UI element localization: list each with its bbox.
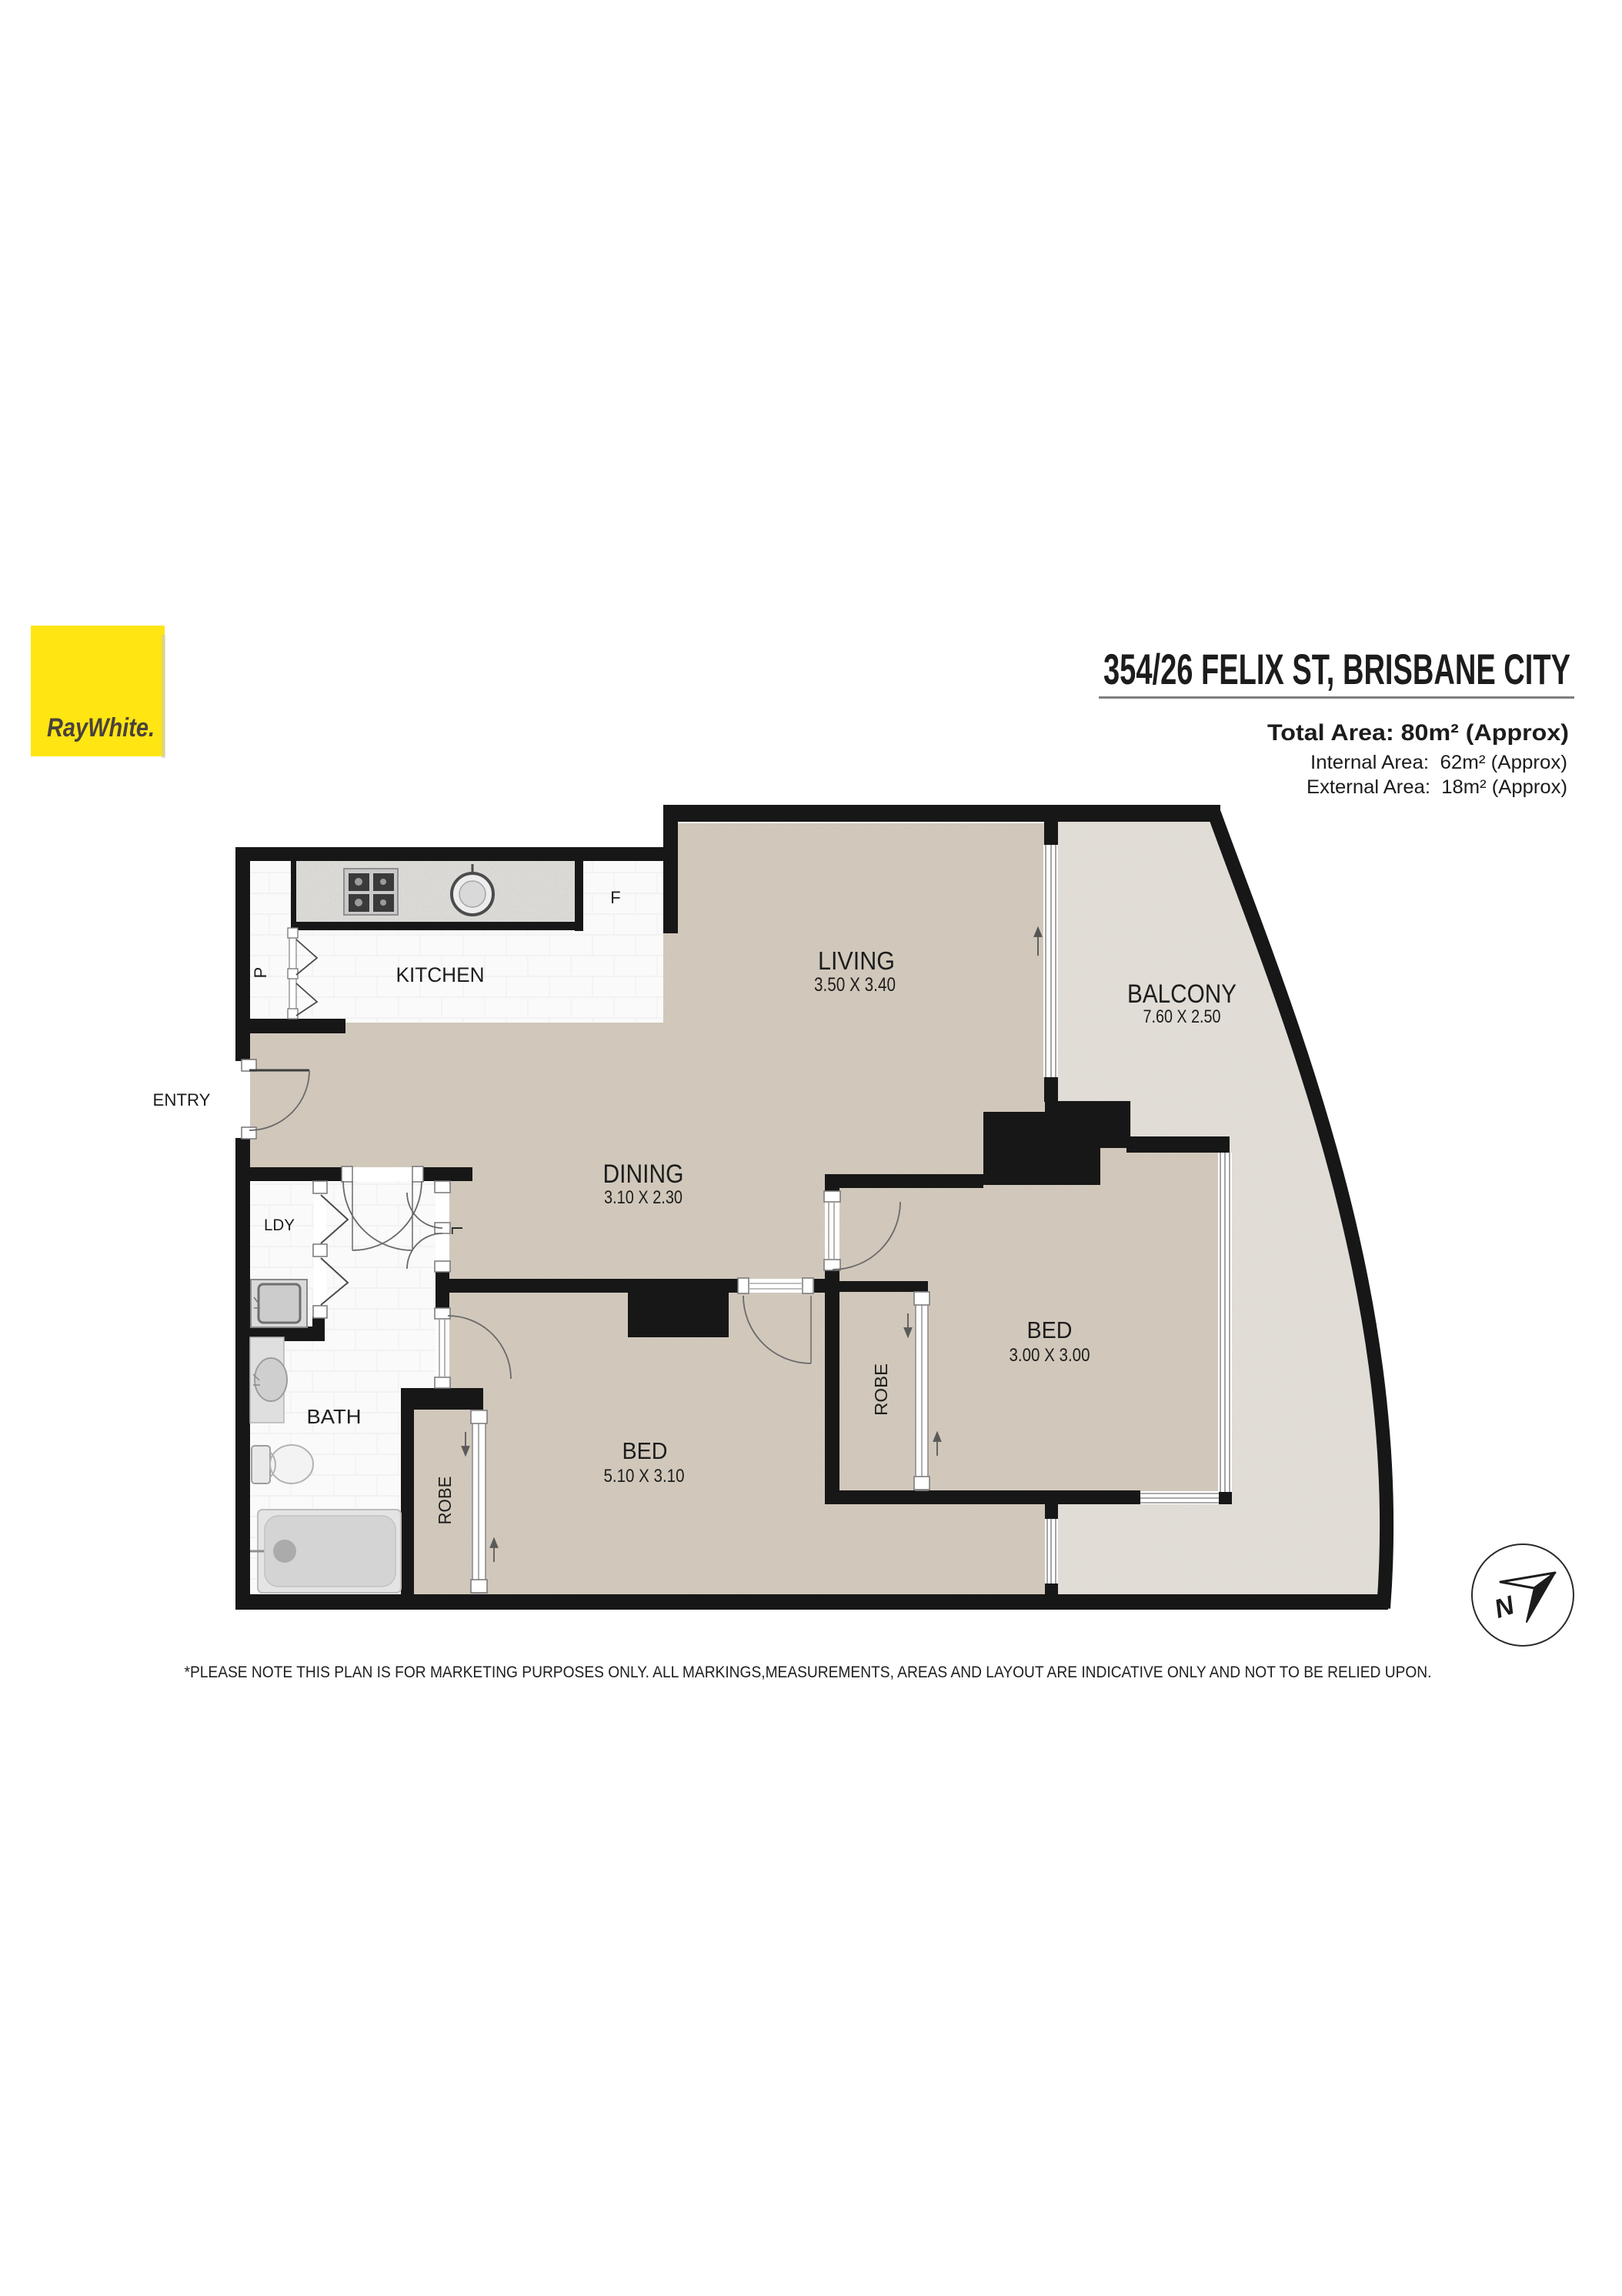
svg-text:LDY: LDY: [264, 1216, 295, 1234]
svg-text:354/26 FELIX ST, BRISBANE CITY: 354/26 FELIX ST, BRISBANE CITY: [1103, 645, 1570, 693]
svg-text:BED: BED: [1027, 1317, 1073, 1343]
svg-text:Total Area: 80m² (Approx): Total Area: 80m² (Approx): [1267, 720, 1569, 746]
svg-text:3.10 X 2.30: 3.10 X 2.30: [604, 1187, 683, 1208]
svg-text:*PLEASE NOTE THIS PLAN IS FOR: *PLEASE NOTE THIS PLAN IS FOR MARKETING …: [185, 1664, 1432, 1681]
svg-text:BATH: BATH: [307, 1405, 362, 1428]
svg-text:KITCHEN: KITCHEN: [396, 963, 485, 986]
svg-text:5.10 X 3.10: 5.10 X 3.10: [604, 1466, 685, 1487]
svg-text:F: F: [610, 888, 620, 907]
svg-text:ROBE: ROBE: [871, 1363, 891, 1416]
svg-text:ROBE: ROBE: [435, 1477, 455, 1525]
svg-text:Internal Area: 62m² (Approx): Internal Area: 62m² (Approx): [1310, 752, 1567, 773]
svg-text:3.00 X 3.00: 3.00 X 3.00: [1010, 1345, 1090, 1366]
svg-text:LIVING: LIVING: [818, 946, 895, 975]
svg-text:RayWhite.: RayWhite.: [47, 713, 155, 743]
svg-text:7.60 X 2.50: 7.60 X 2.50: [1143, 1006, 1221, 1027]
svg-text:P: P: [251, 967, 270, 979]
svg-text:ENTRY: ENTRY: [153, 1090, 211, 1110]
svg-text:3.50 X 3.40: 3.50 X 3.40: [814, 974, 896, 996]
svg-text:L: L: [448, 1226, 465, 1234]
svg-text:DINING: DINING: [603, 1160, 684, 1189]
svg-text:External Area: 18m² (Approx): External Area: 18m² (Approx): [1307, 776, 1567, 798]
svg-text:BED: BED: [622, 1437, 668, 1464]
svg-text:BALCONY: BALCONY: [1127, 979, 1237, 1009]
